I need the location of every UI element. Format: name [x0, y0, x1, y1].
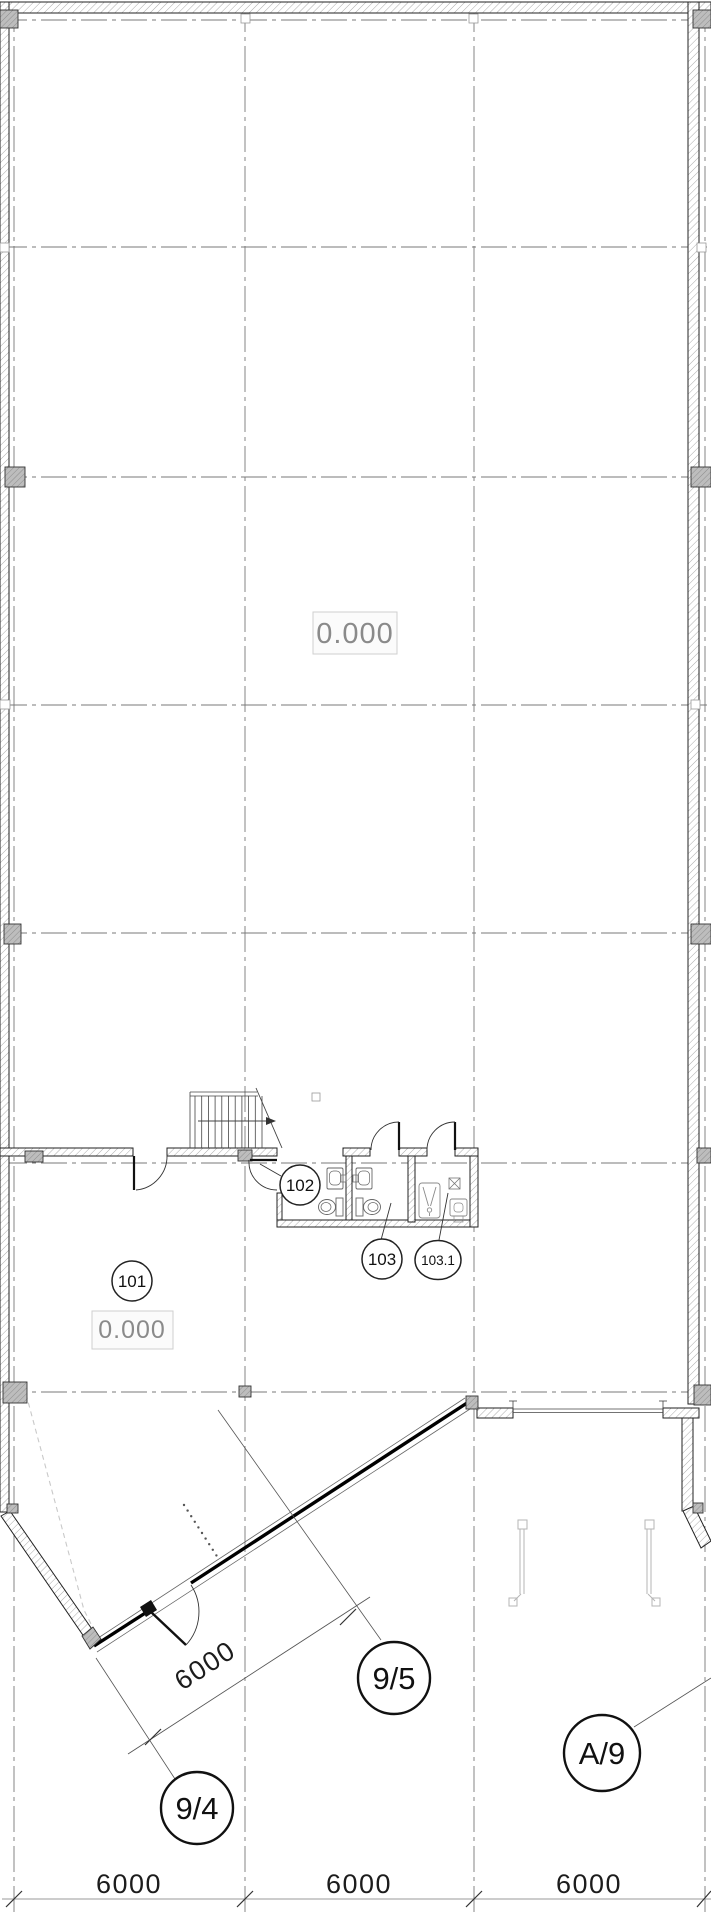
room-label-101: 101: [112, 1261, 152, 1301]
dim-bottom-2: 6000: [326, 1869, 392, 1899]
elevation-marker-101: 0.000: [92, 1311, 173, 1349]
sink-2: [353, 1168, 372, 1189]
dotted-line: [183, 1504, 218, 1557]
sanitary-fixtures: [319, 1168, 468, 1222]
downpipes: [509, 1520, 660, 1606]
downpipe-left: [509, 1520, 527, 1606]
stairs: [190, 1088, 282, 1148]
storefront-wall: [92, 1398, 470, 1652]
wc-partition-1: [346, 1156, 352, 1220]
dim-diagonal: 6000: [169, 1635, 241, 1696]
columns: [0, 10, 711, 1649]
floor-plan-canvas: 6000 6000 6000 6000 9/4 9/5 A/9 101: [0, 0, 711, 1920]
svg-text:9/5: 9/5: [372, 1661, 415, 1696]
svg-text:102: 102: [286, 1176, 314, 1195]
grid-lines: [1, 6, 710, 1912]
svg-text:0.000: 0.000: [98, 1316, 166, 1344]
wc-partition-2: [408, 1156, 415, 1222]
floor-plan-drawing: 6000 6000 6000 6000 9/4 9/5 A/9 101: [0, 0, 711, 1920]
sanitary-block-bottom-wall: [277, 1220, 478, 1227]
shower-tray: [419, 1183, 440, 1218]
toilet-2: [356, 1198, 381, 1216]
axis-marker-9-4: 9/4: [161, 1772, 233, 1844]
extract-fan-icon: [449, 1178, 460, 1189]
sink-1: [327, 1168, 346, 1189]
toilet-1: [319, 1198, 344, 1216]
sanitary-block-right-wall: [470, 1156, 478, 1227]
dimension-lines: 6000 6000 6000 6000: [2, 1410, 711, 1907]
svg-text:9/4: 9/4: [175, 1791, 218, 1826]
downpipe-right: [645, 1520, 660, 1606]
elevation-marker-hall: 0.000: [313, 612, 397, 654]
dim-bottom-3: 6000: [556, 1869, 622, 1899]
dim-bottom-1: 6000: [96, 1869, 162, 1899]
axis-marker-9-5: 9/5: [358, 1642, 430, 1714]
left-exterior-wall: [0, 2, 9, 1512]
svg-text:0.000: 0.000: [316, 618, 394, 650]
svg-text:A/9: A/9: [579, 1736, 626, 1771]
room-label-102: 102: [260, 1164, 320, 1205]
walls: [0, 2, 711, 1641]
room-label-103: 103: [362, 1203, 402, 1279]
svg-text:101: 101: [118, 1272, 146, 1291]
elevation-markers: 0.000 0.000: [92, 612, 397, 1349]
sw-diagonal-wall: [1, 1511, 96, 1641]
svg-text:103.1: 103.1: [421, 1253, 455, 1268]
window: [509, 1401, 667, 1413]
entrance-door-swing-arc: [186, 1585, 199, 1645]
axis-markers: 9/4 9/5 A/9: [161, 1642, 640, 1844]
entrance-door-leaf: [151, 1612, 186, 1645]
grid-marker-squares: [0, 14, 706, 1101]
top-exterior-wall: [0, 2, 711, 13]
axis-marker-a-9: A/9: [564, 1715, 640, 1791]
stair-break-line: [256, 1088, 282, 1148]
svg-text:103: 103: [368, 1250, 396, 1269]
water-heater: [450, 1199, 467, 1222]
